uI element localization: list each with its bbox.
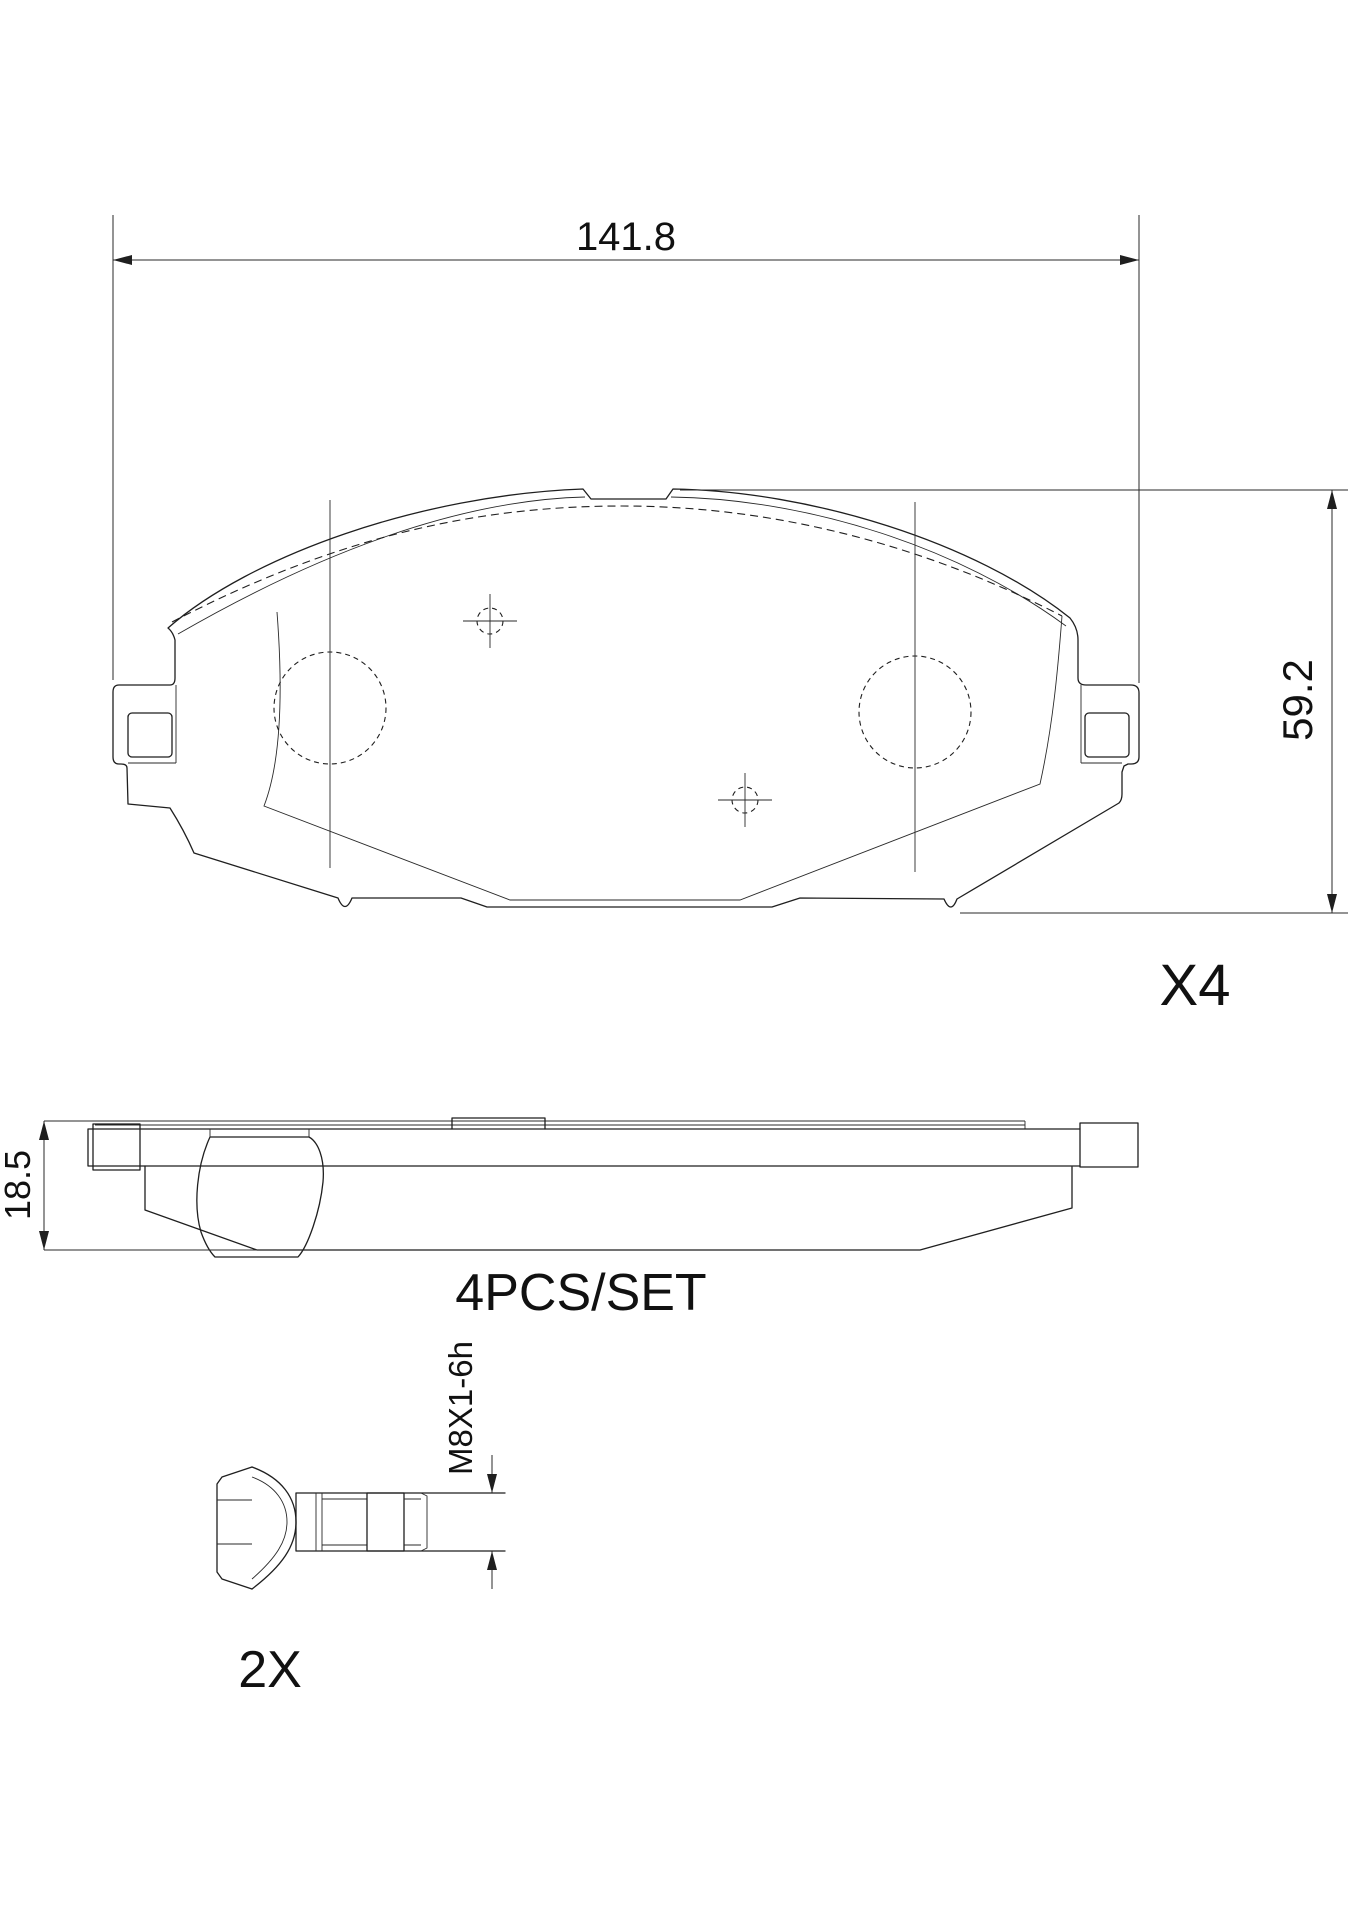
width-value: 141.8	[576, 215, 676, 259]
bolt-side-view	[217, 1467, 505, 1589]
bolt-quantity-label: 2X	[238, 1641, 302, 1699]
set-quantity-label: 4PCS/SET	[455, 1264, 706, 1322]
bolt-flange	[252, 1467, 296, 1589]
height-value: 59.2	[1274, 659, 1321, 741]
friction-top-boundary	[172, 506, 1062, 622]
rivet-hole-2	[718, 773, 772, 827]
right-ear-inner-wall	[1081, 685, 1122, 763]
dimension-thread: M8X1-6h	[442, 1341, 497, 1589]
pad-top-inner-edge	[178, 497, 1066, 634]
brake-pad-drawing: 141.8 59.2 X4 18.5 4PCS/SET	[0, 0, 1358, 1920]
dimension-width: 141.8	[113, 215, 1139, 683]
rivet-hole-1	[463, 594, 517, 648]
dimension-thickness: 18.5	[0, 1121, 257, 1250]
technical-drawing-page: 141.8 59.2 X4 18.5 4PCS/SET	[0, 0, 1358, 1920]
bolt-head	[217, 1467, 252, 1589]
pad-quantity-label: X4	[1160, 953, 1231, 1018]
left-ear-inner-wall	[128, 685, 176, 763]
thickness-value: 18.5	[0, 1150, 38, 1220]
pad-outline	[113, 489, 1139, 907]
thread-value: M8X1-6h	[442, 1341, 479, 1475]
left-ear-slot	[128, 713, 172, 757]
clip-section-hatch	[197, 1137, 323, 1257]
pad-side-view	[88, 1118, 1138, 1257]
bolt-shank	[296, 1493, 505, 1551]
right-ear-slot	[1085, 713, 1129, 757]
pad-front-view	[113, 489, 1139, 907]
bolt-knurl-hatch	[367, 1493, 404, 1551]
dimension-height: 59.2	[680, 490, 1348, 913]
friction-side-profile	[145, 1166, 1072, 1250]
friction-boundary	[264, 612, 1062, 900]
